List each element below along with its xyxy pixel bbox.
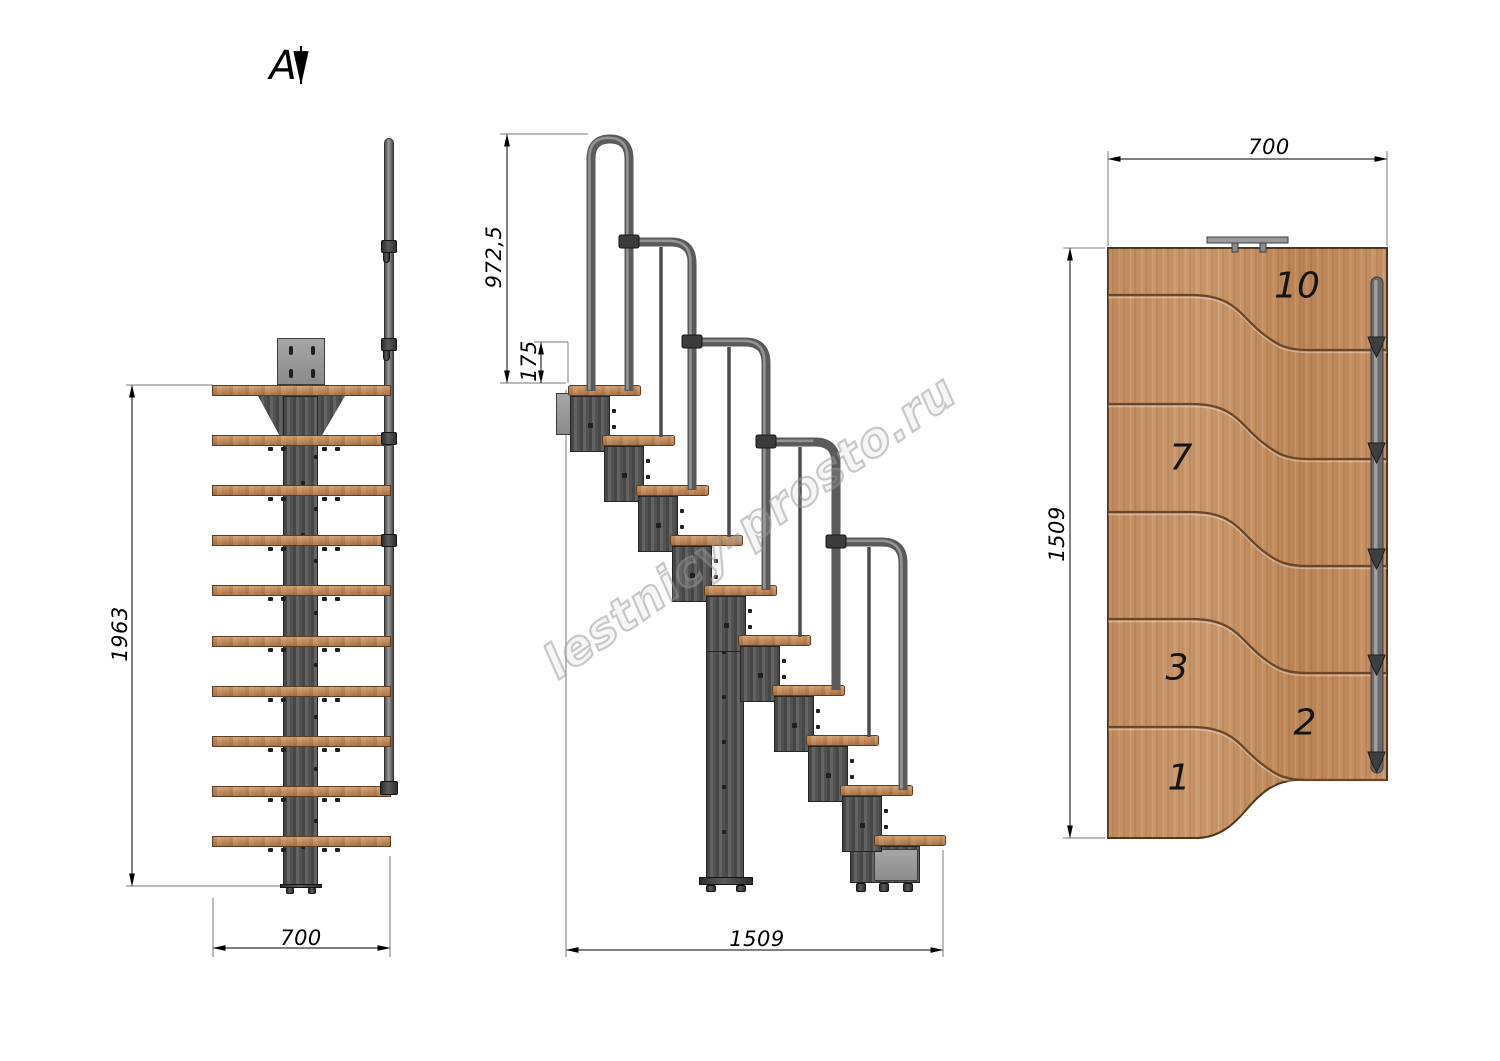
technical-drawing-page: A 1963 700 972,5 175 1509 700 1509 10 7 … (0, 0, 1500, 1061)
plan-handrail-edge (1368, 277, 1385, 773)
